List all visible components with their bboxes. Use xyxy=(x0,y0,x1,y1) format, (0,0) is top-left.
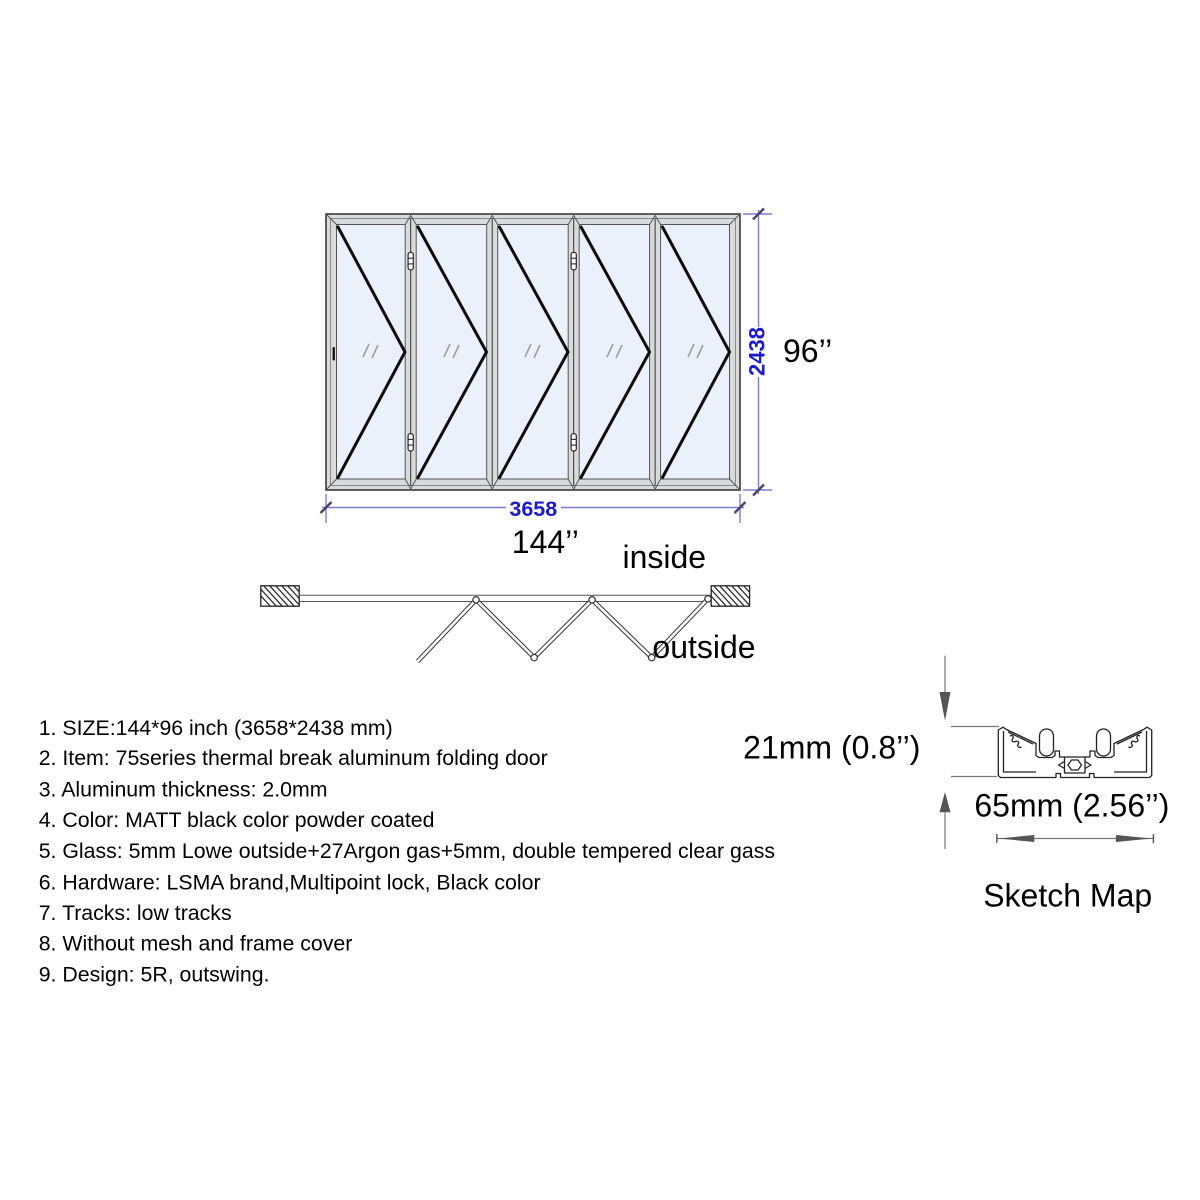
svg-text:3. Aluminum thickness: 2.0mm: 3. Aluminum thickness: 2.0mm xyxy=(39,777,328,801)
svg-text:144’’: 144’’ xyxy=(512,524,579,560)
svg-text:Sketch Map: Sketch Map xyxy=(983,878,1152,914)
svg-text:65mm (2.56’’): 65mm (2.56’’) xyxy=(974,788,1169,824)
svg-text:inside: inside xyxy=(622,539,706,575)
svg-text:6. Hardware: LSMA brand,Multip: 6. Hardware: LSMA brand,Multipoint lock,… xyxy=(39,870,541,894)
svg-text:outside: outside xyxy=(652,629,755,665)
svg-text:8. Without mesh and frame cove: 8. Without mesh and frame cover xyxy=(39,932,353,956)
svg-text:2438: 2438 xyxy=(745,327,770,376)
svg-text:7. Tracks: low tracks: 7. Tracks: low tracks xyxy=(39,901,232,925)
svg-text:21mm (0.8’’): 21mm (0.8’’) xyxy=(743,729,920,765)
svg-text:5. Glass: 5mm Lowe outside+27A: 5. Glass: 5mm Lowe outside+27Argon gas+5… xyxy=(39,839,775,863)
svg-text:9. Design: 5R, outswing.: 9. Design: 5R, outswing. xyxy=(39,963,270,987)
svg-text:2. Item: 75series thermal brea: 2. Item: 75series thermal break aluminum… xyxy=(39,746,548,770)
svg-text:96’’: 96’’ xyxy=(783,333,832,369)
svg-text:1. SIZE:144*96 inch (3658*2438: 1. SIZE:144*96 inch (3658*2438 mm) xyxy=(39,716,393,740)
svg-text:3658: 3658 xyxy=(509,497,557,521)
svg-text:4. Color: MATT black color pow: 4. Color: MATT black color powder coated xyxy=(39,808,435,832)
